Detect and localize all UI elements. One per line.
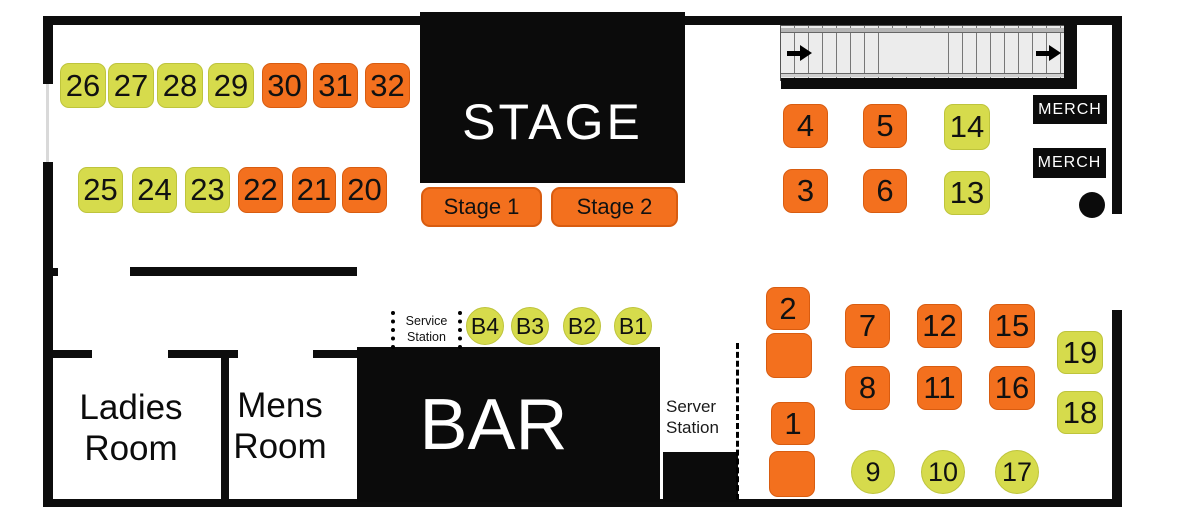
table-26[interactable]: 26: [60, 63, 106, 108]
table-b4[interactable]: B4: [466, 307, 504, 345]
table-7[interactable]: 7: [845, 304, 890, 348]
stairs-direction-arrow-icon: [787, 45, 812, 61]
table-b1[interactable]: B1: [614, 307, 652, 345]
table-17[interactable]: 17: [995, 450, 1039, 494]
restroom-wall-a: [48, 350, 92, 358]
table-20[interactable]: 20: [342, 167, 387, 213]
table-5[interactable]: 5: [863, 104, 907, 148]
table-14[interactable]: 14: [944, 104, 990, 150]
table-24[interactable]: 24: [132, 167, 177, 213]
table-19[interactable]: 19: [1057, 331, 1103, 374]
ladies-room-label: Ladies Room: [52, 387, 210, 470]
table-b3[interactable]: B3: [511, 307, 549, 345]
table-6[interactable]: 6: [863, 169, 907, 213]
table-11[interactable]: 11: [917, 366, 962, 410]
server-station-label: Server Station: [666, 396, 719, 439]
table-28[interactable]: 28: [157, 63, 203, 108]
door-opening-left: [46, 84, 49, 162]
merch-stand: MERCH: [1033, 95, 1107, 124]
stairs-direction-arrow-icon: [1036, 45, 1061, 61]
restroom-wall-c: [313, 350, 358, 358]
wall-left-upper: [43, 16, 53, 84]
merch-stand: MERCH: [1033, 148, 1106, 178]
table-9[interactable]: 9: [851, 450, 895, 494]
table-31[interactable]: 31: [313, 63, 358, 108]
server-station-dashed-line: [736, 343, 739, 500]
stairs-bottom-bar: [781, 78, 1077, 89]
bar-label: BAR: [419, 384, 597, 466]
stage-1-button[interactable]: Stage 1: [421, 187, 542, 227]
stairs-rail-bottom: [781, 73, 1069, 77]
table-30[interactable]: 30: [262, 63, 307, 108]
table-27[interactable]: 27: [108, 63, 154, 108]
speaker-dot: [1079, 192, 1105, 218]
stairs-right-bar: [1064, 20, 1077, 89]
service-station: Service Station: [391, 311, 462, 349]
interior-wall: [130, 267, 357, 276]
table-8[interactable]: 8: [845, 366, 890, 410]
table-12[interactable]: 12: [917, 304, 962, 348]
table-10[interactable]: 10: [921, 450, 965, 494]
wall-left-tick: [43, 268, 58, 276]
stage: STAGE: [420, 12, 685, 183]
table-15[interactable]: 15: [989, 304, 1035, 348]
stairs: [780, 25, 1070, 81]
server-station-block: [663, 452, 738, 502]
table-3[interactable]: 3: [783, 169, 828, 213]
table-blank: [766, 333, 812, 378]
table-2[interactable]: 2: [766, 287, 810, 330]
table-21[interactable]: 21: [292, 167, 336, 213]
table-13[interactable]: 13: [944, 171, 990, 215]
table-29[interactable]: 29: [208, 63, 254, 108]
table-16[interactable]: 16: [989, 366, 1035, 410]
table-b2[interactable]: B2: [563, 307, 601, 345]
mens-room-label: Mens Room: [214, 385, 346, 468]
table-4[interactable]: 4: [783, 104, 828, 148]
venue-floor-plan: STAGE Stage 1 Stage 2 MERCH MERCH BAR Se…: [0, 0, 1200, 525]
table-23[interactable]: 23: [185, 167, 230, 213]
table-25[interactable]: 25: [78, 167, 123, 213]
wall-right-lower: [1112, 310, 1122, 507]
wall-right-upper: [1112, 16, 1122, 214]
table-32[interactable]: 32: [365, 63, 410, 108]
stairs-landing: [884, 33, 944, 73]
table-blank: [769, 451, 815, 497]
table-18[interactable]: 18: [1057, 391, 1103, 434]
table-22[interactable]: 22: [238, 167, 283, 213]
stage-2-button[interactable]: Stage 2: [551, 187, 678, 227]
stage-label: STAGE: [462, 93, 643, 183]
bar: BAR: [357, 347, 660, 502]
service-station-label: Service Station: [406, 314, 448, 345]
table-1[interactable]: 1: [771, 402, 815, 445]
